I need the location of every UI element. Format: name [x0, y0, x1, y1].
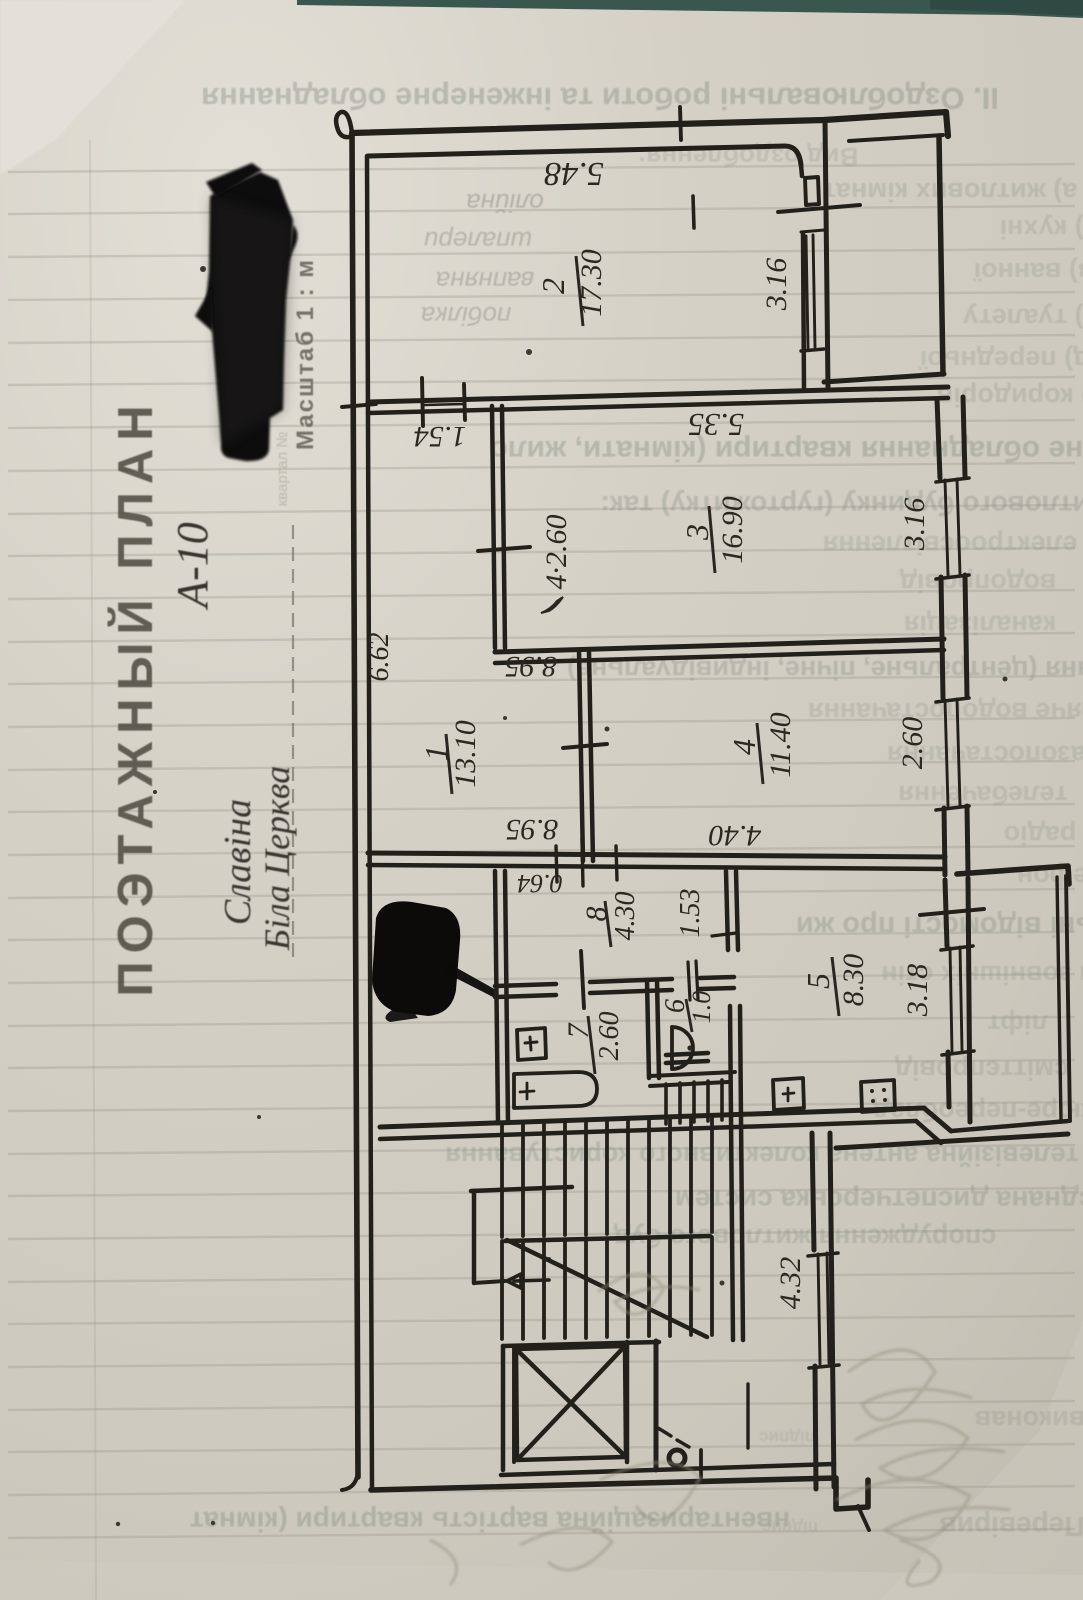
svg-text:1.54: 1.54	[414, 420, 467, 453]
svg-text:нвентаризаційна вартість кварт: нвентаризаційна вартість квартири (кімна…	[190, 1506, 791, 1537]
svg-text:вапняна: вапняна	[436, 266, 534, 296]
svg-text:13.10: 13.10	[449, 720, 482, 788]
svg-text:16.90: 16.90	[716, 496, 749, 564]
svg-text:телевізійна антена колективног: телевізійна антена колективного користув…	[445, 1141, 1079, 1171]
svg-text:олійна: олійна	[466, 188, 544, 218]
svg-text:шпалери: шпалери	[424, 226, 532, 256]
svg-text:а) житлових кімнат: а) житлових кімнат	[823, 177, 1078, 207]
svg-text:г) туалету: г) туалету	[963, 303, 1083, 333]
svg-text:Перевірив: Перевірив	[940, 1511, 1083, 1542]
svg-text:підпис: підпис	[759, 1428, 815, 1447]
svg-text:підпис: підпис	[762, 1518, 818, 1537]
svg-text:8.95: 8.95	[505, 650, 558, 683]
svg-text:6.62: 6.62	[364, 633, 395, 682]
svg-text:4·2.60: 4·2.60	[540, 515, 573, 590]
svg-text:4.32: 4.32	[774, 1257, 807, 1310]
svg-text:об'єднана диспетчерська систем: об'єднана диспетчерська систем	[675, 1185, 1083, 1216]
svg-text:2: 2	[535, 278, 571, 294]
svg-text:радіо: радіо	[1004, 820, 1077, 850]
svg-text:сміттєпровід: сміттєпровід	[895, 1055, 1069, 1085]
svg-text:телебачення: телебачення	[898, 780, 1068, 810]
svg-text:Славіна: Славіна	[217, 799, 259, 925]
svg-text:водопровід: водопровід	[900, 568, 1057, 598]
svg-text:виконав: виконав	[975, 1405, 1083, 1435]
svg-text:квартал №: квартал №	[274, 432, 291, 507]
svg-text:4.40: 4.40	[709, 819, 762, 852]
svg-text:2.60: 2.60	[896, 717, 929, 770]
svg-text:2.60: 2.60	[594, 1012, 625, 1061]
svg-text:3.18: 3.18	[901, 964, 934, 1018]
svg-text:А-10: А-10	[168, 522, 217, 611]
svg-text:Масштаб 1 : м: Масштаб 1 : м	[292, 258, 319, 450]
svg-text:е) коридорів: е) коридорів	[937, 382, 1083, 412]
svg-text:5.35: 5.35	[688, 407, 744, 443]
svg-text:3.16: 3.16	[898, 498, 931, 552]
svg-text:4.30: 4.30	[610, 892, 641, 941]
svg-text:каналізація: каналізація	[904, 610, 1056, 640]
svg-text:8.30: 8.30	[837, 954, 870, 1007]
svg-text:4: 4	[726, 739, 762, 755]
svg-text:б) кухні: б) кухні	[1000, 214, 1083, 244]
svg-text:8.95: 8.95	[506, 813, 559, 846]
svg-text:11.40: 11.40	[764, 712, 797, 777]
svg-text:побілка: побілка	[421, 301, 512, 331]
svg-text:II. Оздоблювальні роботи та ін: II. Оздоблювальні роботи та інженерне об…	[201, 81, 999, 116]
svg-text:5: 5	[800, 973, 836, 989]
svg-text:5.48: 5.48	[544, 155, 604, 192]
svg-text:ПОЭТАЖНЫЙ ПЛАН: ПОЭТАЖНЫЙ ПЛАН	[108, 397, 163, 996]
svg-text:в) ванної: в) ванної	[972, 257, 1083, 287]
svg-text:17.30: 17.30	[575, 249, 608, 317]
svg-text:1.53: 1.53	[675, 889, 706, 938]
svg-text:1.0: 1.0	[687, 991, 716, 1024]
svg-text:0.64: 0.64	[517, 869, 563, 898]
svg-text:житлового будинку (гуртожитку): житлового будинку (гуртожитку) так:	[600, 490, 1083, 521]
svg-text:3.16: 3.16	[760, 258, 793, 312]
svg-text:електроосвітлення: електроосвітлення	[823, 530, 1078, 560]
svg-text:ліфт: ліфт	[987, 1009, 1048, 1039]
svg-text:Біла Церква: Біла Церква	[257, 766, 297, 952]
svg-text:Інженерне обладнання квартири: Інженерне обладнання квартири (кімнати, …	[490, 434, 1083, 467]
